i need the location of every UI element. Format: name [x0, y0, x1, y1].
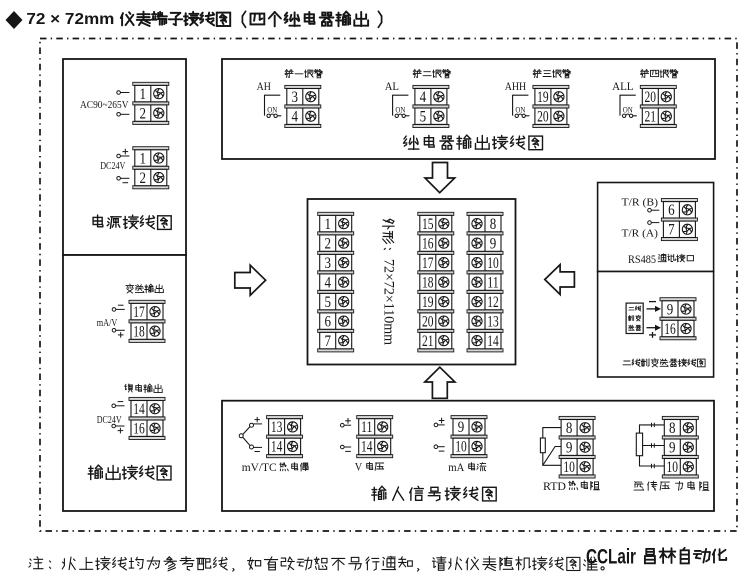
svg-text:13: 13 [487, 313, 499, 330]
svg-text:10: 10 [487, 255, 499, 272]
svg-text:72 × 72mm: 72 × 72mm [26, 11, 114, 28]
svg-text:21: 21 [645, 109, 657, 126]
svg-text:AL: AL [385, 79, 399, 93]
svg-text:14: 14 [361, 439, 373, 456]
svg-text:4: 4 [292, 109, 299, 126]
svg-text:17: 17 [133, 304, 145, 321]
svg-text:20: 20 [422, 313, 434, 330]
svg-text:11: 11 [487, 274, 499, 291]
svg-text:72×72×110mm: 72×72×110mm [381, 259, 397, 346]
svg-text:ON: ON [623, 104, 633, 114]
svg-text:CCLair: CCLair [586, 546, 636, 569]
svg-text:RTD: RTD [543, 479, 566, 493]
svg-text:RS485: RS485 [628, 254, 656, 266]
svg-text:9: 9 [669, 440, 676, 457]
svg-text:5: 5 [420, 109, 427, 126]
svg-text:18: 18 [133, 323, 145, 340]
svg-text:9: 9 [490, 235, 497, 252]
svg-text:AHH: AHH [505, 79, 527, 93]
svg-text:16: 16 [133, 421, 145, 438]
svg-text:19: 19 [537, 89, 549, 106]
svg-text:1: 1 [324, 216, 331, 233]
svg-text:7: 7 [324, 333, 331, 350]
svg-text:18: 18 [422, 274, 434, 291]
svg-text:4: 4 [324, 274, 331, 291]
svg-text:ALL: ALL [612, 79, 633, 93]
svg-text:14: 14 [133, 401, 145, 418]
svg-text:5: 5 [324, 294, 331, 311]
svg-text:13: 13 [271, 419, 283, 436]
svg-text:mA/V: mA/V [97, 317, 118, 329]
svg-text:AH: AH [257, 79, 272, 93]
svg-text:T/R (A): T/R (A) [622, 228, 659, 239]
svg-text:16: 16 [664, 321, 676, 338]
svg-text:3: 3 [292, 89, 299, 106]
svg-text:16: 16 [422, 235, 434, 252]
svg-text:2: 2 [324, 235, 331, 252]
svg-text:12: 12 [487, 294, 499, 311]
svg-text:7: 7 [668, 222, 675, 239]
svg-text:10: 10 [667, 459, 679, 476]
svg-text:20: 20 [537, 109, 549, 126]
svg-text:14: 14 [487, 333, 499, 350]
svg-text:9: 9 [458, 419, 465, 436]
svg-text:10: 10 [455, 439, 467, 456]
svg-text:6: 6 [668, 202, 675, 219]
svg-text:6: 6 [324, 313, 331, 330]
svg-text:T/R (B): T/R (B) [622, 198, 659, 209]
svg-text:1: 1 [140, 150, 147, 167]
svg-text:8: 8 [490, 216, 497, 233]
svg-text:4: 4 [420, 89, 427, 106]
svg-text:8: 8 [566, 420, 573, 437]
svg-text:17: 17 [422, 255, 434, 272]
svg-text:ON: ON [395, 104, 405, 114]
svg-text:15: 15 [422, 216, 434, 233]
svg-text:9: 9 [667, 301, 674, 318]
svg-text:9: 9 [566, 440, 573, 457]
svg-text:10: 10 [563, 459, 575, 476]
svg-text:ON: ON [515, 104, 525, 114]
svg-text:14: 14 [271, 439, 283, 456]
svg-text:DC24V: DC24V [97, 414, 122, 426]
svg-text:ON: ON [267, 104, 277, 114]
svg-text:21: 21 [422, 333, 434, 350]
svg-text:8: 8 [669, 420, 676, 437]
svg-text:19: 19 [422, 294, 434, 311]
svg-text:V: V [355, 461, 363, 473]
svg-text:1: 1 [140, 86, 147, 103]
svg-text:2: 2 [140, 170, 147, 187]
svg-text:mA: mA [448, 462, 465, 474]
svg-text:DC24V: DC24V [100, 160, 125, 172]
svg-text:20: 20 [645, 89, 657, 106]
svg-text:11: 11 [361, 419, 373, 436]
svg-text:3: 3 [324, 255, 331, 272]
svg-text:AC90~265V: AC90~265V [80, 99, 129, 111]
svg-text:mV/TC: mV/TC [242, 462, 277, 474]
svg-text:2: 2 [140, 105, 147, 122]
